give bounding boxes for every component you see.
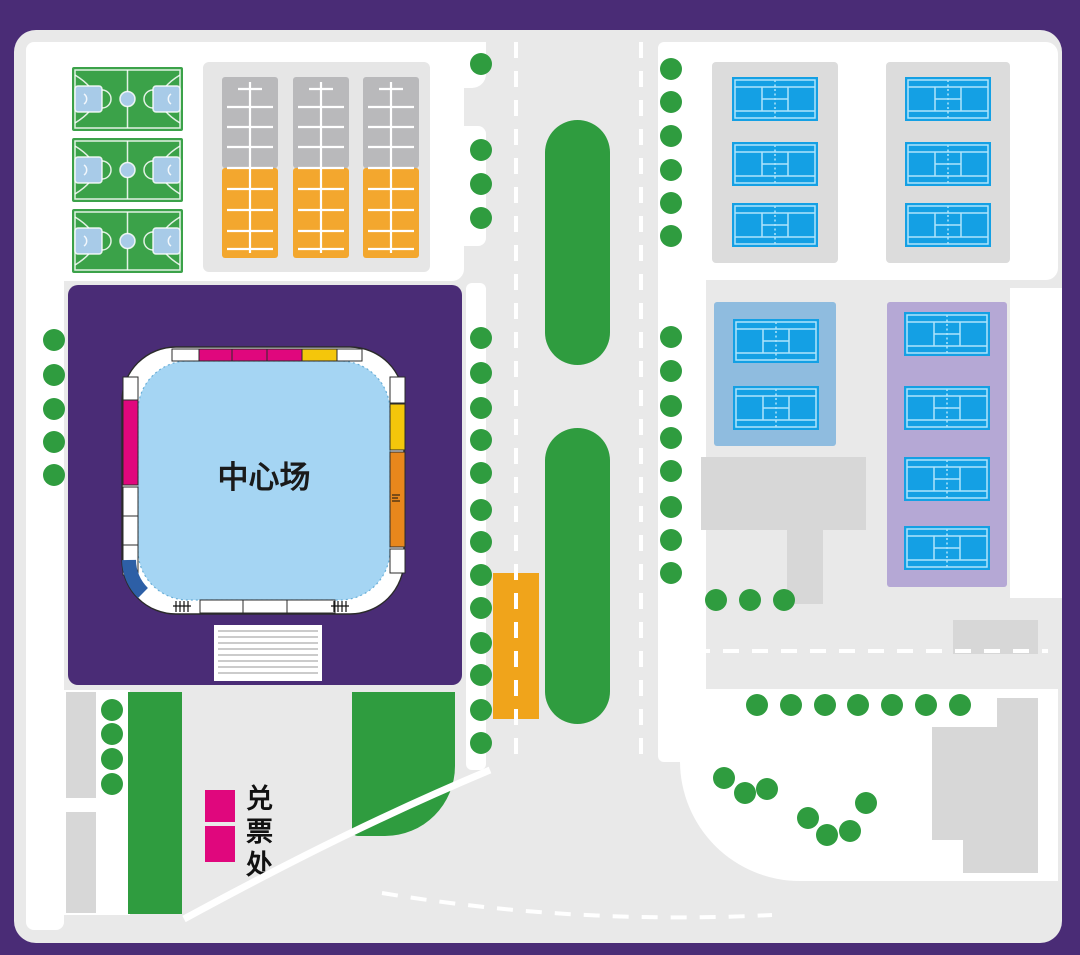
tree	[855, 792, 877, 814]
tree	[470, 53, 492, 75]
tennis-court	[904, 457, 990, 501]
east-sidewalk	[1010, 288, 1062, 598]
tree	[660, 529, 682, 551]
tree	[470, 173, 492, 195]
west-building-1	[66, 692, 96, 798]
tree	[660, 159, 682, 181]
tree	[756, 778, 778, 800]
tree	[660, 562, 682, 584]
venue-map-poster: 中心场 兑票处	[0, 0, 1080, 955]
tree	[470, 732, 492, 754]
tree	[660, 360, 682, 382]
bus-bay	[493, 573, 539, 719]
tree	[470, 632, 492, 654]
ticket-booth-1	[205, 790, 235, 822]
tree	[43, 364, 65, 386]
tree	[816, 824, 838, 846]
grandstand-court	[222, 77, 278, 258]
tree	[915, 694, 937, 716]
tree	[660, 326, 682, 348]
tree	[660, 125, 682, 147]
tree	[847, 694, 869, 716]
tree	[814, 694, 836, 716]
tree	[470, 207, 492, 229]
tree	[660, 91, 682, 113]
se-building-step2	[932, 727, 1038, 840]
tree	[660, 58, 682, 80]
tree	[660, 225, 682, 247]
basketball-court	[72, 209, 183, 273]
tree	[43, 431, 65, 453]
road-west-sidewalk	[466, 283, 486, 770]
se-building-step3	[963, 840, 1038, 873]
tree	[470, 531, 492, 553]
tennis-court	[905, 142, 991, 186]
tennis-court	[732, 77, 818, 121]
tree	[470, 564, 492, 586]
tree	[470, 664, 492, 686]
l-building-top	[701, 457, 866, 530]
tree	[470, 499, 492, 521]
tree	[470, 699, 492, 721]
tree	[746, 694, 768, 716]
tree	[470, 327, 492, 349]
tree	[43, 464, 65, 486]
basketball-court	[72, 67, 183, 131]
tree	[101, 748, 123, 770]
tree	[660, 496, 682, 518]
tennis-court	[733, 386, 819, 430]
ticket-office-label: 兑票处	[243, 784, 270, 884]
tennis-court	[732, 142, 818, 186]
tree	[470, 429, 492, 451]
tree	[101, 699, 123, 721]
grandstand-court	[363, 77, 419, 258]
tree	[780, 694, 802, 716]
tree	[739, 589, 761, 611]
tennis-court	[733, 319, 819, 363]
tree	[101, 723, 123, 745]
ticket-booth-2	[205, 826, 235, 862]
tree	[660, 460, 682, 482]
tennis-court	[904, 312, 990, 356]
tennis-court	[905, 203, 991, 247]
tree	[713, 767, 735, 789]
tree	[797, 807, 819, 829]
green-strip-southwest	[128, 692, 182, 914]
tree	[734, 782, 756, 804]
tree	[470, 397, 492, 419]
tree	[43, 398, 65, 420]
tree	[773, 589, 795, 611]
tree	[101, 773, 123, 795]
tree	[470, 139, 492, 161]
tree	[470, 597, 492, 619]
center-court-label: 中心场	[164, 452, 364, 497]
road-median-south	[545, 428, 610, 724]
tree	[839, 820, 861, 842]
tree	[660, 192, 682, 214]
basketball-court	[72, 138, 183, 202]
tennis-court	[904, 526, 990, 570]
tree	[43, 329, 65, 351]
stadium-staircase	[214, 625, 322, 681]
tree	[470, 362, 492, 384]
grandstand-court	[293, 77, 349, 258]
tennis-court	[732, 203, 818, 247]
tennis-court	[904, 386, 990, 430]
west-building-2	[66, 812, 96, 913]
tree	[660, 395, 682, 417]
se-building-step1	[997, 698, 1038, 727]
tree	[949, 694, 971, 716]
tennis-court	[905, 77, 991, 121]
tree	[660, 427, 682, 449]
tree	[705, 589, 727, 611]
tree	[470, 462, 492, 484]
tree	[881, 694, 903, 716]
road-median-north	[545, 120, 610, 365]
east-road-block	[953, 620, 1038, 654]
